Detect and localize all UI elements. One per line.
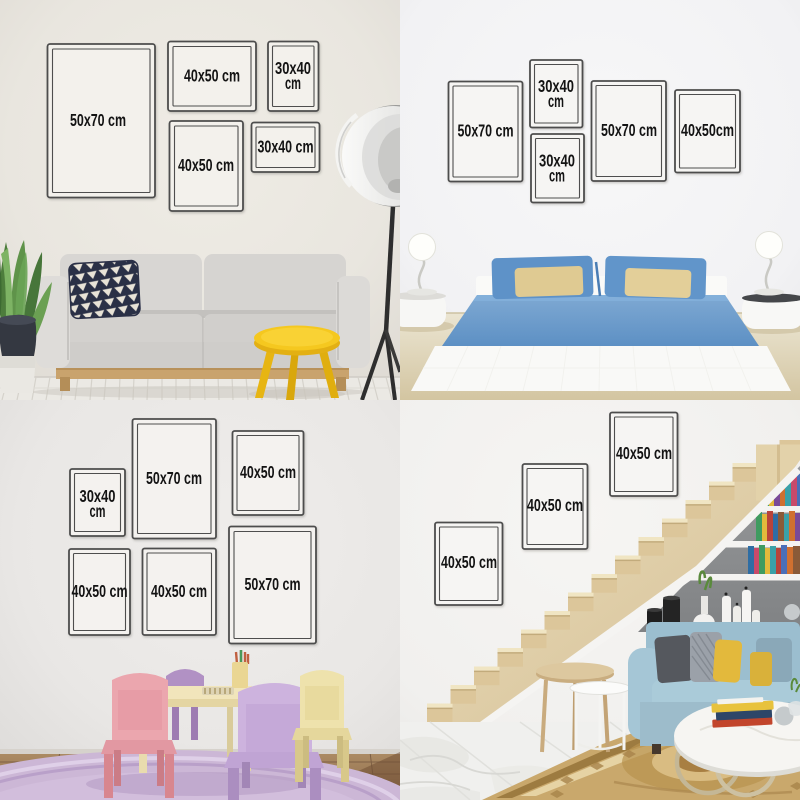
svg-text:50x70 cm: 50x70 cm (70, 110, 126, 130)
svg-text:40x50cm: 40x50cm (681, 120, 734, 140)
svg-text:40x50 cm: 40x50 cm (441, 552, 497, 572)
svg-text:40x50 cm: 40x50 cm (178, 155, 234, 175)
svg-text:50x70 cm: 50x70 cm (245, 574, 301, 594)
svg-text:50x70 cm: 50x70 cm (146, 468, 202, 488)
svg-text:30x40 cm: 30x40 cm (258, 137, 314, 157)
svg-text:50x70 cm: 50x70 cm (458, 121, 514, 141)
svg-text:cm: cm (549, 166, 565, 186)
svg-text:40x50 cm: 40x50 cm (72, 581, 128, 601)
svg-text:cm: cm (90, 501, 106, 521)
svg-text:cm: cm (285, 73, 301, 93)
svg-text:cm: cm (548, 91, 564, 111)
svg-text:40x50 cm: 40x50 cm (184, 66, 240, 86)
svg-text:40x50 cm: 40x50 cm (240, 462, 296, 482)
svg-text:40x50 cm: 40x50 cm (527, 495, 583, 515)
svg-text:50x70 cm: 50x70 cm (601, 120, 657, 140)
svg-text:40x50 cm: 40x50 cm (151, 581, 207, 601)
svg-text:40x50 cm: 40x50 cm (616, 443, 672, 463)
